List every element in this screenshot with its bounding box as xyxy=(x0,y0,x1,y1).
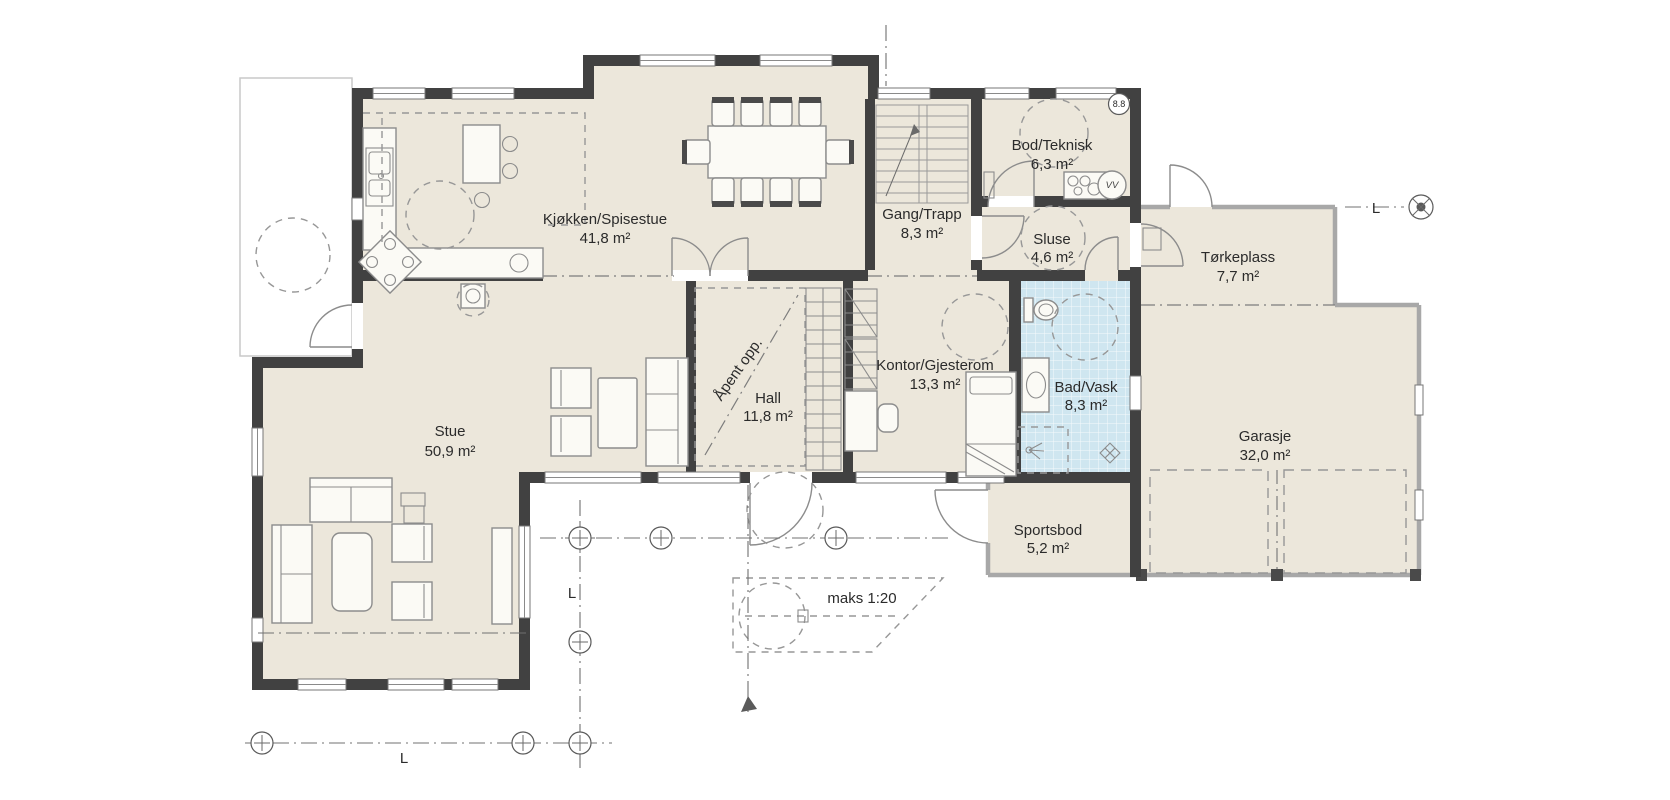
toilet-bowl xyxy=(1034,300,1058,320)
survey-marker xyxy=(569,631,591,653)
kitchen-island xyxy=(463,125,500,183)
room-label-sluse-area: 4,6 m² xyxy=(1031,249,1074,266)
room-label-sportsbod-name: Sportsbod xyxy=(1014,522,1082,539)
toilet-tank xyxy=(1024,298,1033,322)
floor-plan-page: VV xyxy=(0,0,1670,800)
grid-label-left: L xyxy=(568,585,576,602)
sideboard xyxy=(492,528,512,624)
room-label-sluse-name: Sluse xyxy=(1033,231,1071,248)
fireplace xyxy=(461,284,485,308)
bed xyxy=(966,372,1016,476)
room-label-hall-area: 11,8 m² xyxy=(743,408,793,425)
survey-marker xyxy=(650,527,672,549)
terrace-outline xyxy=(240,78,352,356)
room-label-kontor-area: 13,3 m² xyxy=(910,376,961,393)
floor-plan-drawing: VV xyxy=(0,0,1670,800)
room-label-bod-area: 6,3 m² xyxy=(1031,156,1074,173)
survey-marker xyxy=(512,732,534,754)
survey-marker xyxy=(251,732,273,754)
detail-bubble: 8.8 xyxy=(1109,94,1130,115)
room-label-tork-name: Tørkeplass xyxy=(1201,249,1275,266)
room-label-kitchen-name: Kjøkken/Spisestue xyxy=(543,211,667,228)
room-label-bad-name: Bad/Vask xyxy=(1054,379,1118,396)
survey-marker xyxy=(825,527,847,549)
room-label-garasje-name: Garasje xyxy=(1239,428,1292,445)
room-label-garasje-area: 32,0 m² xyxy=(1240,447,1291,464)
survey-marker xyxy=(565,523,595,553)
room-label-hall-name: Hall xyxy=(755,390,781,407)
grid-label-right: L xyxy=(1372,200,1380,217)
section-arrow xyxy=(741,696,757,712)
room-label-gang-area: 8,3 m² xyxy=(901,225,944,242)
desk-chair xyxy=(878,404,898,432)
room-label-stue-area: 50,9 m² xyxy=(425,443,476,460)
dining-table xyxy=(708,126,826,178)
survey-marker xyxy=(569,732,591,754)
detail-bubble-label: 8.8 xyxy=(1113,99,1126,109)
desk xyxy=(845,391,877,451)
room-label-gang-name: Gang/Trapp xyxy=(882,206,962,223)
room-label-tork-area: 7,7 m² xyxy=(1217,268,1260,285)
grid-label-bottom: L xyxy=(400,750,408,767)
benchmark-marker xyxy=(1409,195,1433,219)
room-label-kitchen-area: 41,8 m² xyxy=(580,230,631,247)
room-label-sportsbod-area: 5,2 m² xyxy=(1027,540,1070,557)
room-label-bod-name: Bod/Teknisk xyxy=(1012,137,1093,154)
ramp-slope-label: maks 1:20 xyxy=(827,590,896,607)
water-heater-label: VV xyxy=(1106,180,1120,191)
room-label-kontor-name: Kontor/Gjesterom xyxy=(876,357,994,374)
room-label-bad-area: 8,3 m² xyxy=(1065,397,1108,414)
room-label-stue-name: Stue xyxy=(435,423,466,440)
